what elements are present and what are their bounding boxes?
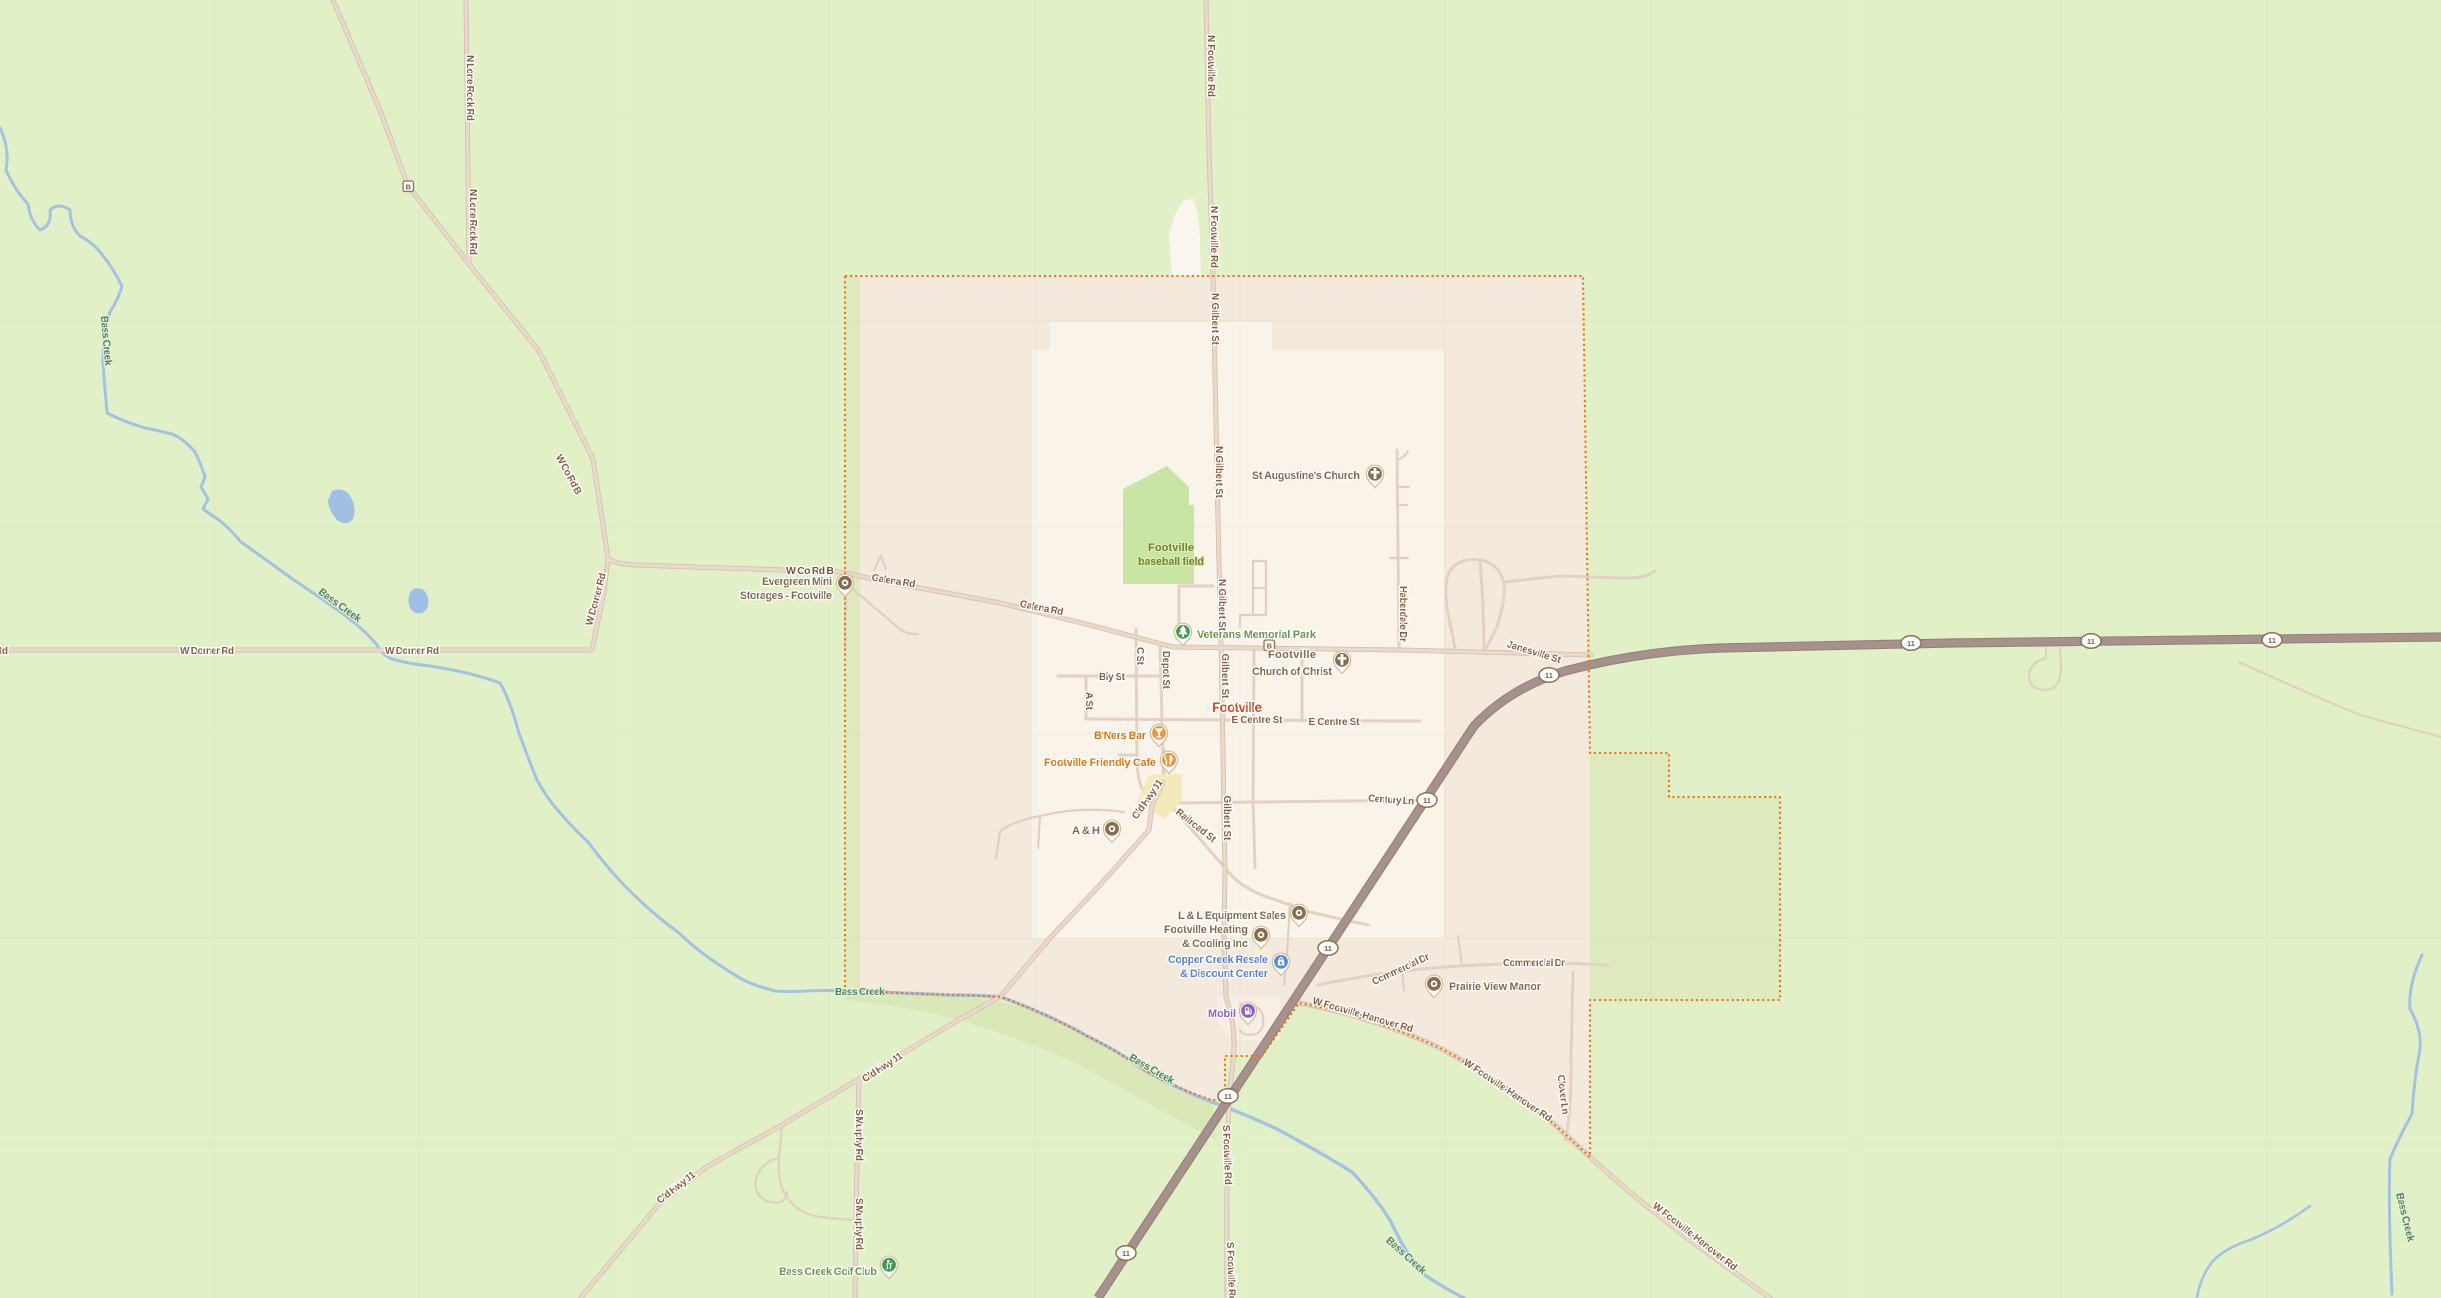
svg-text:N Footville Rd: N Footville Rd: [1205, 35, 1216, 97]
svg-text:Footville: Footville: [1148, 542, 1194, 554]
svg-text:Bass Creek Golf Club: Bass Creek Golf Club: [779, 1266, 877, 1278]
svg-text:11: 11: [2087, 637, 2095, 646]
svg-text:N Lone Rock Rd: N Lone Rock Rd: [464, 55, 475, 121]
svg-text:Mobil: Mobil: [1208, 1008, 1236, 1020]
svg-text:S Footville Rd: S Footville Rd: [1220, 1125, 1233, 1185]
svg-text:St Augustine's Church: St Augustine's Church: [1252, 470, 1360, 482]
svg-text:baseball field: baseball field: [1138, 556, 1204, 568]
svg-text:Footville Heating: Footville Heating: [1164, 924, 1248, 936]
svg-text:Gilbert St: Gilbert St: [1219, 654, 1230, 700]
svg-text:B: B: [406, 182, 412, 191]
svg-text:Gilbert St: Gilbert St: [1221, 796, 1232, 842]
svg-text:N Gilbert St: N Gilbert St: [1213, 446, 1224, 499]
svg-text:Copper Creek Resale: Copper Creek Resale: [1168, 954, 1268, 966]
svg-text:W Dorner Rd: W Dorner Rd: [385, 646, 439, 657]
svg-text:L & L Equipment Sales: L & L Equipment Sales: [1178, 910, 1286, 922]
svg-text:Church of Christ: Church of Christ: [1252, 666, 1332, 678]
svg-text:11: 11: [1324, 944, 1332, 953]
svg-text:Prairie View Manor: Prairie View Manor: [1449, 981, 1542, 993]
svg-text:& Cooling Inc: & Cooling Inc: [1182, 938, 1248, 950]
svg-text:Evergreen Mini: Evergreen Mini: [762, 576, 832, 588]
svg-text:Veterans Memorial Park: Veterans Memorial Park: [1197, 629, 1317, 641]
svg-text:11: 11: [2268, 636, 2276, 645]
svg-text:11: 11: [1907, 639, 1915, 648]
svg-text:N Footville Rd: N Footville Rd: [1208, 206, 1219, 268]
svg-text:Commercial Dr: Commercial Dr: [1503, 958, 1565, 969]
svg-text:Footville: Footville: [1268, 649, 1316, 661]
svg-text:E Centre St: E Centre St: [1309, 717, 1361, 728]
svg-text:A & H: A & H: [1072, 825, 1100, 837]
svg-text:B'Ners Bar: B'Ners Bar: [1094, 730, 1147, 742]
svg-text:Bass Creek: Bass Creek: [835, 986, 885, 998]
svg-text:Footville Friendly Cafe: Footville Friendly Cafe: [1044, 757, 1156, 769]
svg-text:& Discount Center: & Discount Center: [1180, 968, 1269, 980]
svg-text:Haberdale Dr: Haberdale Dr: [1397, 586, 1408, 642]
svg-text:11: 11: [1122, 1249, 1130, 1258]
svg-text:A St: A St: [1083, 692, 1094, 711]
svg-text:N Gilbert St: N Gilbert St: [1209, 293, 1220, 346]
svg-text:S Footville Rd: S Footville Rd: [1224, 1242, 1237, 1298]
svg-text:11: 11: [1545, 671, 1553, 680]
svg-text:S Murphy Rd: S Murphy Rd: [853, 1109, 864, 1161]
svg-text:E Centre St: E Centre St: [1232, 715, 1284, 726]
svg-text:N Gilbert St: N Gilbert St: [1216, 579, 1227, 632]
svg-text:Bly St: Bly St: [1099, 672, 1126, 683]
svg-text:N Lone Rock Rd: N Lone Rock Rd: [467, 189, 478, 255]
svg-text:Depot St: Depot St: [1160, 651, 1171, 690]
svg-text:Storages - Footville: Storages - Footville: [740, 590, 832, 602]
svg-text:W Dorner Rd: W Dorner Rd: [0, 646, 8, 657]
svg-text:W Dorner Rd: W Dorner Rd: [180, 646, 234, 657]
svg-text:C St: C St: [1134, 647, 1145, 666]
svg-text:11: 11: [1224, 1092, 1232, 1101]
svg-text:S Murphy Rd: S Murphy Rd: [853, 1198, 864, 1250]
svg-text:Footville: Footville: [1212, 700, 1262, 715]
svg-text:11: 11: [1423, 796, 1431, 805]
